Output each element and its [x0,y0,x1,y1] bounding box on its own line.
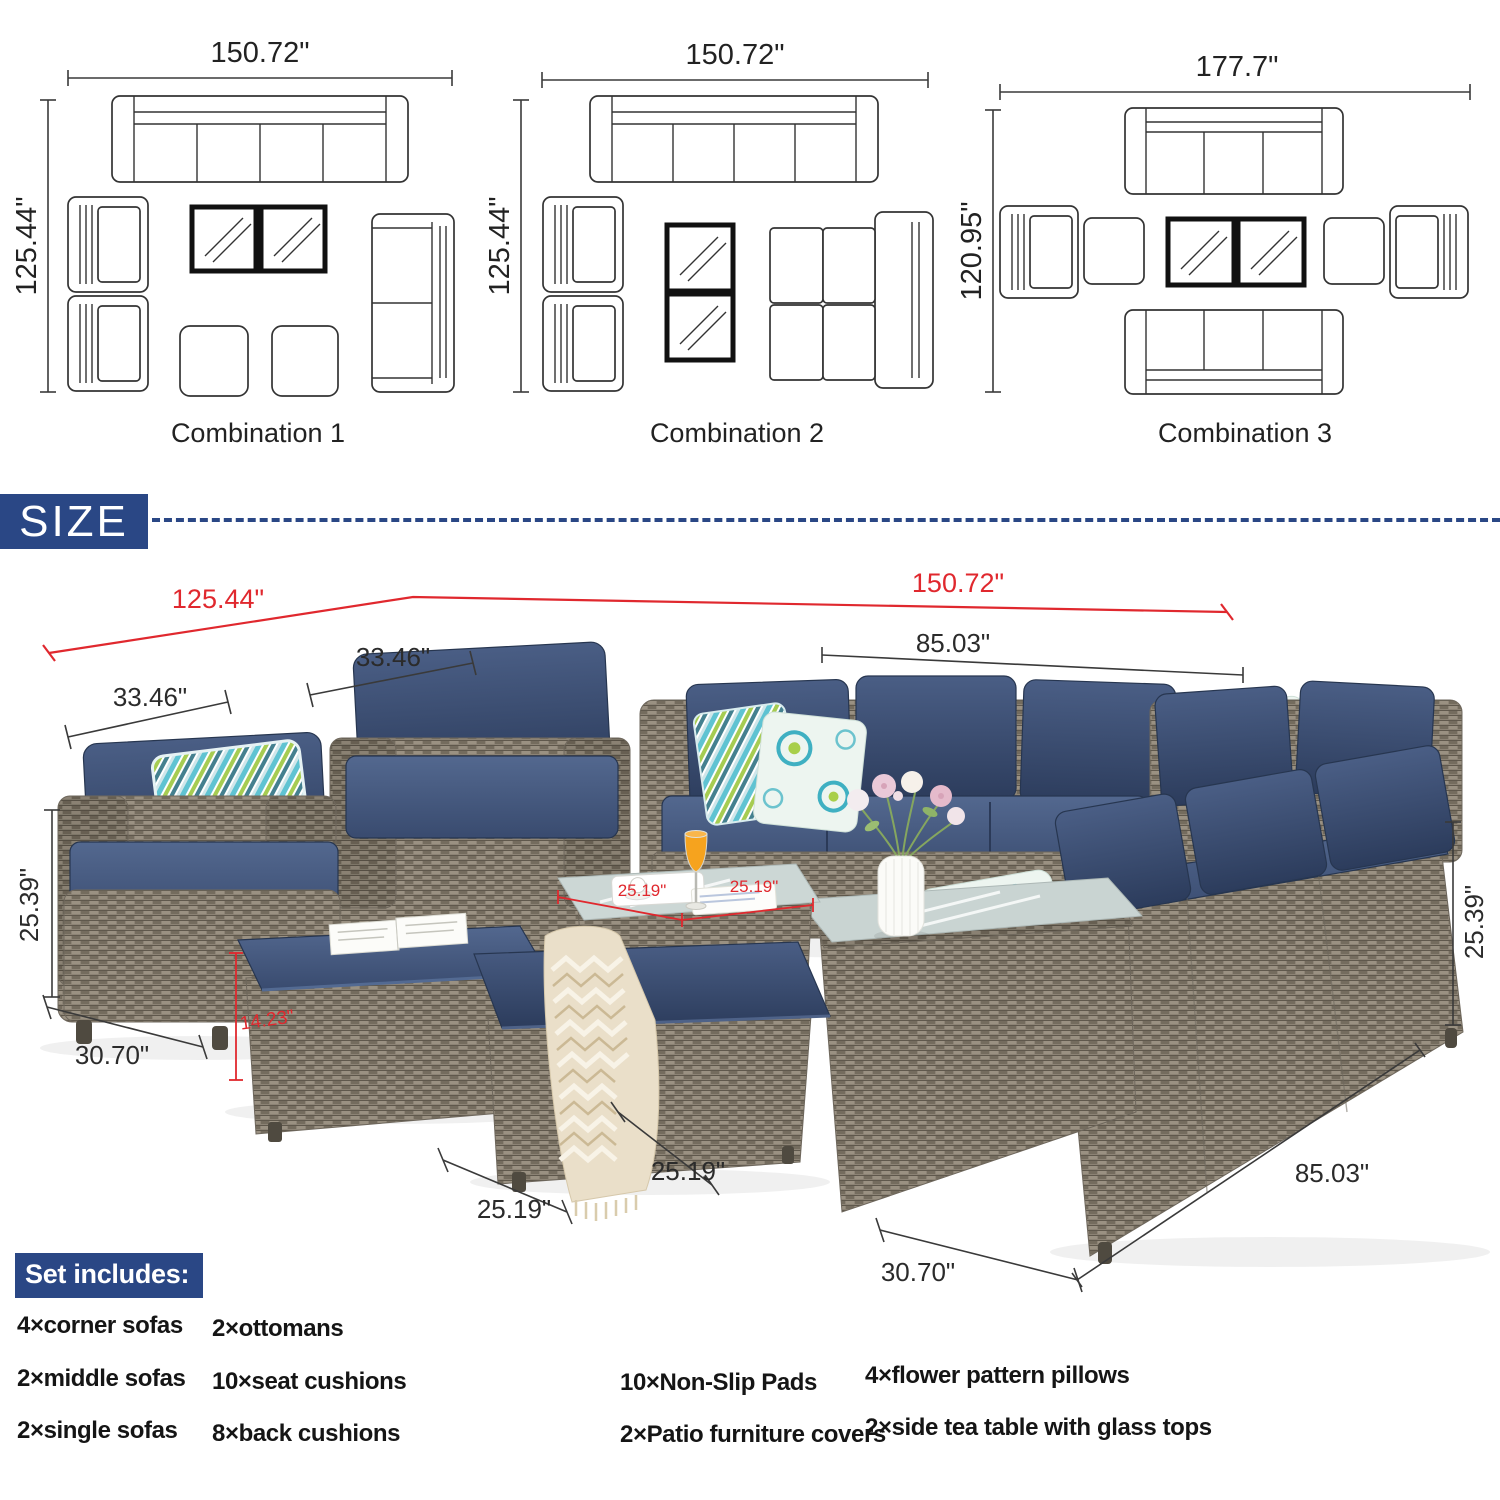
list-item: 4×corner sofas [17,1312,183,1340]
combo1-height-dimension: 125.44" [11,100,56,392]
combo3-right-chair-ottoman-top-view [1324,206,1468,298]
combo3-sofa-bottom-top-view [1125,310,1343,394]
dashed-divider-line [152,518,1500,522]
combo1-width-label: 150.72" [211,37,310,69]
flower-pattern-pillow [752,711,867,833]
combo2-height-label: 125.44" [484,197,516,296]
sofa-height-right-label: 25.39" [1459,885,1489,959]
list-item: 10×Non-Slip Pads [620,1369,817,1397]
combo2-corner-sofa-top-view [770,212,933,388]
set-includes-header: Set includes: [25,1259,189,1289]
corner-depth-bottom-dimension: 30.70" [876,1218,1082,1292]
list-item: 2×ottomans [212,1315,343,1343]
size-badge: SIZE [0,494,148,549]
size-section-divider: SIZE [0,494,1500,550]
table-top-width-label: 25.19" [618,881,667,900]
size-scene: 125.44" 150.72" 33.46" 33.46" 85.03" [0,550,1500,1300]
sofa-length-top-label: 85.03" [916,628,990,658]
table-top-depth-label: 25.19" [730,877,779,896]
ottoman-width-side-label: 25.19" [651,1156,725,1186]
chair-width-back-label: 33.46" [356,642,430,672]
combo1-label: Combination 1 [171,418,345,448]
sofa-height-left-dimension: 25.39" [14,810,60,997]
list-item: 2×single sofas [17,1417,177,1445]
list-item: 8×back cushions [212,1420,400,1448]
size-badge-label: SIZE [19,497,129,547]
combo3-width-label: 177.7" [1196,51,1279,83]
combo3-sofa-top-view [1125,108,1343,194]
list-item: 2×middle sofas [17,1365,185,1393]
combo2-tea-tables-top-view [667,225,733,360]
sofa-height-left-label: 25.39" [14,868,44,942]
list-item: 2×side tea table with glass tops [865,1414,1212,1442]
combo2-sofa-top-view [590,96,878,182]
combo3-height-label: 120.95" [956,202,988,301]
combo1-single-chair-top-view [68,197,148,292]
list-item: 10×seat cushions [212,1368,406,1396]
combo3-label: Combination 3 [1158,418,1332,448]
combo3-tea-tables-top-view [1168,219,1304,285]
combination-3: 177.7" 120.95" [956,51,1470,448]
list-item: 2×Patio furniture covers [620,1421,886,1449]
combo1-height-label: 125.44" [11,197,43,296]
chair-width-front-label: 33.46" [113,682,187,712]
combo2-height-dimension: 125.44" [484,100,529,392]
combination-1: 150.72" 125.44" [11,37,454,448]
corner-depth-bottom-label: 30.70" [881,1257,955,1287]
combo2-label: Combination 2 [650,418,824,448]
combo3-width-dimension: 177.7" [1000,51,1470,100]
patio-set-infographic: 150.72" 125.44" [0,0,1500,1500]
overall-width-left-label: 125.44" [172,584,264,614]
combo1-ottomans-top-view [180,326,338,396]
set-includes-badge: Set includes: [15,1253,203,1298]
chair-depth-left-label: 30.70" [75,1040,149,1070]
overall-width-dimension-red: 125.44" 150.72" [43,568,1233,661]
combo1-width-dimension: 150.72" [68,37,452,86]
sofa-length-right-label: 85.03" [1295,1158,1369,1188]
overall-width-right-label: 150.72" [912,568,1004,598]
combo3-height-dimension: 120.95" [956,110,1001,392]
combination-diagrams: 150.72" 125.44" [0,0,1500,470]
combo2-width-dimension: 150.72" [542,39,928,88]
sofa-length-top-dimension: 85.03" [822,628,1243,683]
ottoman-width-front-label: 25.19" [477,1194,551,1224]
combo2-single-chair-top-view-2 [543,296,623,391]
combination-2: 150.72" 125.44" [484,39,933,448]
list-item: 4×flower pattern pillows [865,1362,1129,1390]
combo1-loveseat-top-view [372,214,454,392]
combo1-tea-tables-top-view [192,207,325,271]
combo2-single-chair-top-view [543,197,623,292]
combo1-single-chair-top-view-2 [68,296,148,391]
combo2-width-label: 150.72" [686,39,785,71]
combo1-sofa-top-view [112,96,408,182]
combo3-left-chair-ottoman-top-view [1000,206,1144,298]
